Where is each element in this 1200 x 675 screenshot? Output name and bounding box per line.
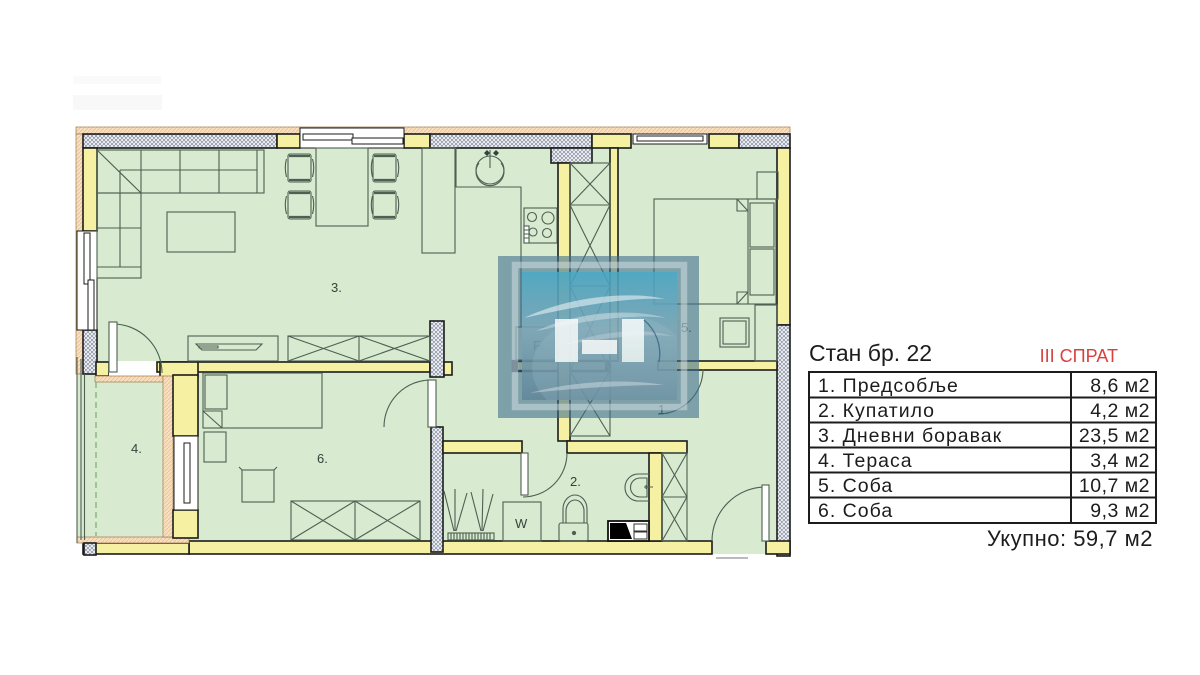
svg-text:2. Купатило: 2. Купатило (818, 400, 935, 422)
svg-text:2.: 2. (570, 474, 581, 489)
svg-text:Стан бр. 22: Стан бр. 22 (809, 340, 932, 366)
svg-text:6. Соба: 6. Соба (818, 500, 893, 522)
svg-text:3,4 м2: 3,4 м2 (1090, 450, 1150, 472)
svg-text:5. Соба: 5. Соба (818, 475, 893, 497)
svg-text:6.: 6. (317, 451, 328, 466)
svg-text:W: W (515, 516, 528, 531)
svg-text:23,5 м2: 23,5 м2 (1079, 425, 1150, 447)
svg-text:4.: 4. (131, 441, 142, 456)
svg-text:III СПРАТ: III СПРАТ (1040, 346, 1118, 366)
svg-text:1. Предсобље: 1. Предсобље (818, 375, 959, 397)
svg-text:3.: 3. (331, 280, 342, 295)
svg-text:10,7 м2: 10,7 м2 (1079, 475, 1150, 497)
svg-text:3. Дневни боравак: 3. Дневни боравак (818, 425, 1002, 447)
svg-text:Укупно: 59,7 м2: Укупно: 59,7 м2 (987, 526, 1153, 551)
svg-text:9,3 м2: 9,3 м2 (1090, 500, 1150, 522)
svg-text:8,6 м2: 8,6 м2 (1090, 375, 1150, 397)
svg-text:4. Тераса: 4. Тераса (818, 450, 913, 472)
svg-text:4,2 м2: 4,2 м2 (1090, 400, 1150, 422)
